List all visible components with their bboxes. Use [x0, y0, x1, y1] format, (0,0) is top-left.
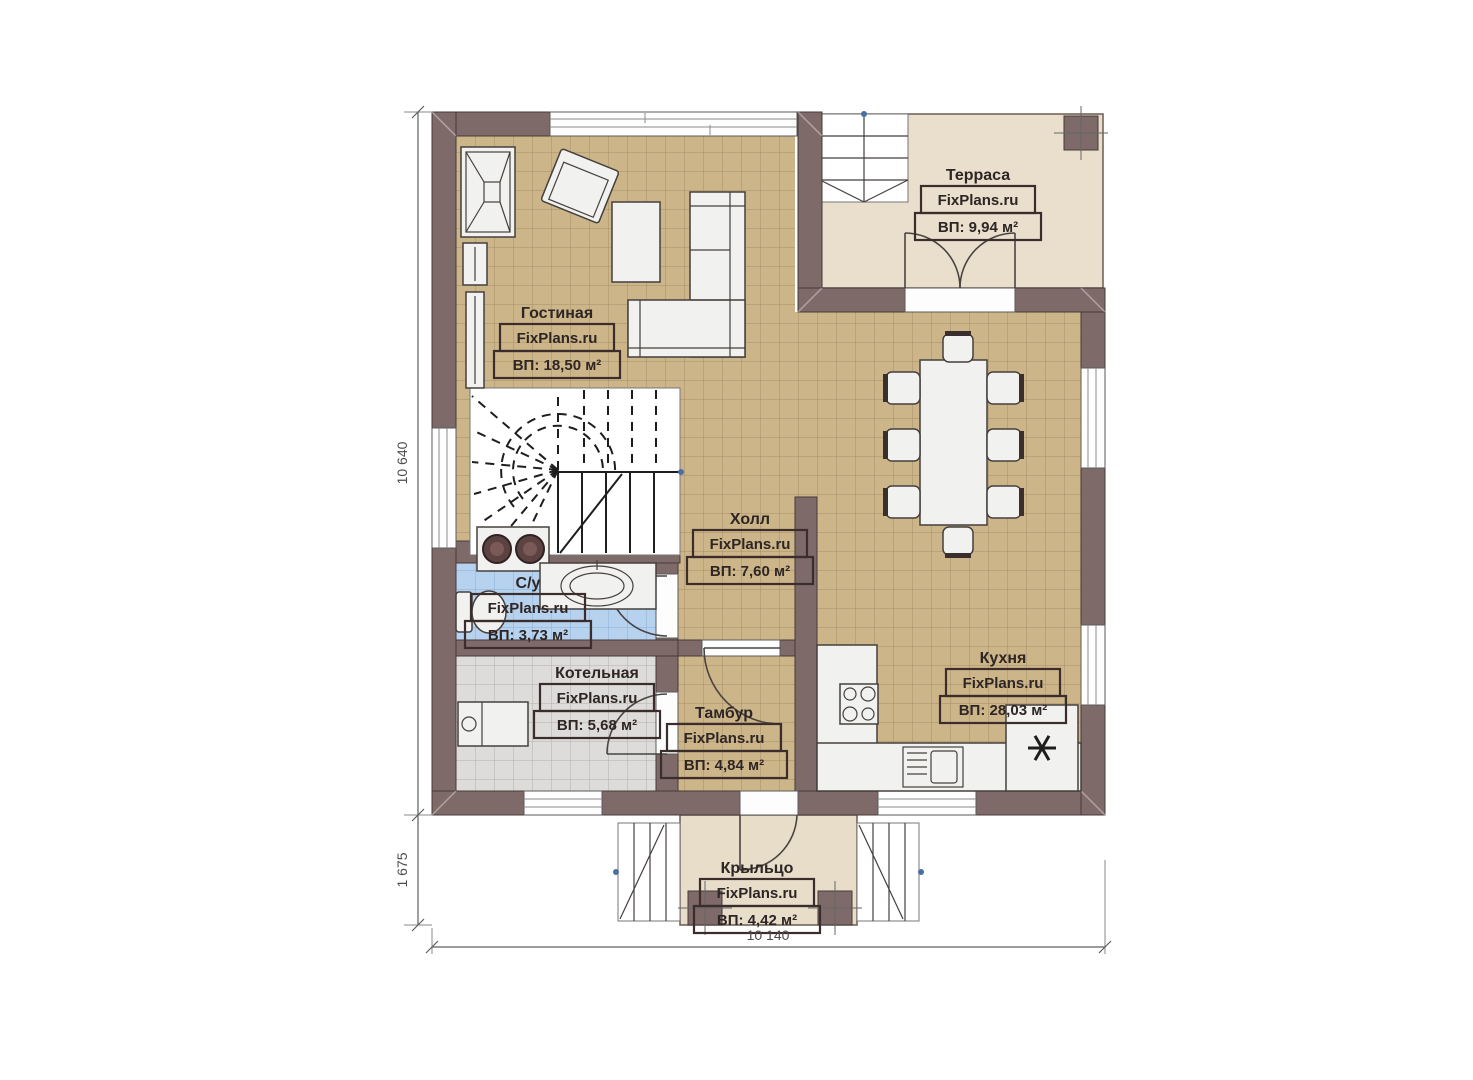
- room-area: ВП: 7,60 м²: [710, 563, 790, 580]
- dimension-bottom-label: 10 140: [747, 927, 790, 943]
- floor-plan-svg: Гостиная FixPlans.ru ВП: 18,50 м² Террас…: [0, 0, 1473, 1080]
- dining-chair: [883, 372, 920, 404]
- room-name: С/у: [516, 575, 541, 592]
- porch-stair-left: [613, 823, 680, 921]
- room-name: Кухня: [980, 650, 1027, 667]
- room-area: ВП: 28,03 м²: [959, 702, 1048, 719]
- porch-stair-right: [857, 823, 924, 921]
- window-kitchen-right-lower: [1081, 625, 1105, 705]
- dining-chair: [943, 527, 973, 558]
- room-name: Котельная: [555, 665, 639, 682]
- dining-chair: [883, 486, 920, 518]
- stove: [840, 684, 878, 724]
- brand-watermark: FixPlans.ru: [557, 690, 638, 707]
- laundry-unit: [477, 527, 549, 571]
- brand-watermark: FixPlans.ru: [717, 885, 798, 902]
- window-kitchen-bottom: [878, 791, 976, 815]
- brand-watermark: FixPlans.ru: [684, 730, 765, 747]
- brand-watermark: FixPlans.ru: [488, 600, 569, 617]
- brand-watermark: FixPlans.ru: [517, 330, 598, 347]
- room-area: ВП: 9,94 м²: [938, 219, 1018, 236]
- room-area: ВП: 4,84 м²: [684, 757, 764, 774]
- dining-chair: [943, 331, 973, 362]
- room-name: Гостиная: [521, 305, 593, 322]
- hall-kitchen-opening-floor: [795, 312, 817, 498]
- window-living-top: [550, 112, 797, 136]
- wall-terrace-vertical: [798, 112, 822, 312]
- window-stairs-left: [432, 428, 456, 548]
- node-dot: [861, 111, 867, 117]
- dimension-porch-label: 1 675: [394, 852, 410, 887]
- room-name: Холл: [730, 511, 770, 528]
- dining-chair: [987, 429, 1024, 461]
- boiler-unit: [458, 702, 528, 746]
- fireplace: [461, 147, 515, 237]
- brand-watermark: FixPlans.ru: [963, 675, 1044, 692]
- brand-watermark: FixPlans.ru: [710, 536, 791, 553]
- room-name: Крыльцо: [721, 860, 794, 877]
- dimension-left-label: 10 640: [394, 441, 410, 484]
- room-name: Терраса: [946, 167, 1010, 184]
- window-boiler-bottom: [524, 791, 602, 815]
- dining-chair: [987, 486, 1024, 518]
- coffee-table: [612, 202, 660, 282]
- room-area: ВП: 3,73 м²: [488, 627, 568, 644]
- dining-chair: [883, 429, 920, 461]
- room-area: ВП: 18,50 м²: [513, 357, 602, 374]
- floor-plan-page: Гостиная FixPlans.ru ВП: 18,50 м² Террас…: [0, 0, 1473, 1080]
- dimension-left: 10 640: [394, 106, 432, 821]
- dining-chair: [987, 372, 1024, 404]
- window-kitchen-right-upper: [1081, 368, 1105, 468]
- wall-right: [1081, 288, 1105, 815]
- radiator-shelf: [463, 243, 487, 388]
- brand-watermark: FixPlans.ru: [938, 192, 1019, 209]
- room-name: Тамбур: [695, 705, 753, 722]
- room-area: ВП: 5,68 м²: [557, 717, 637, 734]
- dimension-porch: 1 675: [394, 815, 432, 931]
- terrace-exterior-stair: [820, 111, 908, 202]
